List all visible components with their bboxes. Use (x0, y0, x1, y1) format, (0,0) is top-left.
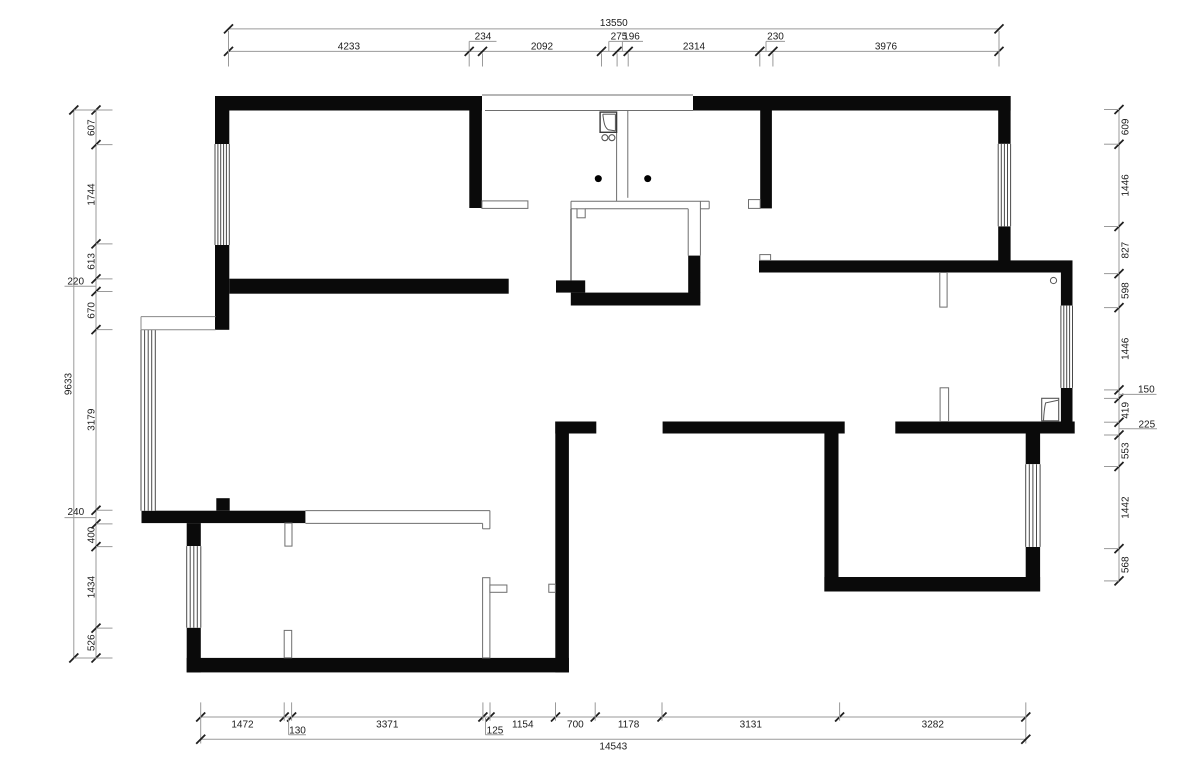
svg-text:1434: 1434 (86, 576, 97, 599)
svg-text:1178: 1178 (618, 720, 640, 731)
svg-text:609: 609 (1121, 118, 1132, 135)
svg-text:400: 400 (86, 526, 97, 543)
svg-text:1154: 1154 (512, 720, 534, 731)
svg-text:526: 526 (86, 634, 97, 651)
svg-text:196: 196 (623, 31, 640, 42)
svg-text:4233: 4233 (338, 41, 361, 52)
svg-text:3179: 3179 (86, 408, 97, 431)
svg-text:9633: 9633 (63, 372, 74, 395)
svg-text:598: 598 (1121, 282, 1132, 299)
svg-text:1744: 1744 (86, 183, 97, 206)
svg-text:2314: 2314 (683, 41, 706, 52)
svg-text:700: 700 (567, 720, 584, 731)
svg-text:230: 230 (767, 31, 784, 42)
svg-text:1472: 1472 (231, 720, 254, 731)
svg-text:1442: 1442 (1121, 496, 1132, 519)
svg-text:553: 553 (1121, 442, 1132, 459)
svg-text:419: 419 (1121, 402, 1132, 419)
svg-text:670: 670 (86, 302, 97, 319)
svg-text:3371: 3371 (376, 720, 399, 731)
svg-text:240: 240 (67, 507, 84, 518)
svg-text:2092: 2092 (531, 41, 554, 52)
svg-text:3976: 3976 (875, 41, 898, 52)
svg-text:1446: 1446 (1121, 337, 1132, 360)
svg-text:3282: 3282 (922, 720, 945, 731)
svg-text:827: 827 (1121, 241, 1132, 258)
svg-text:607: 607 (86, 119, 97, 136)
svg-text:568: 568 (1121, 556, 1132, 573)
svg-text:3131: 3131 (740, 720, 763, 731)
svg-text:1446: 1446 (1121, 174, 1132, 197)
svg-text:150: 150 (1138, 385, 1155, 396)
svg-text:14543: 14543 (599, 742, 627, 753)
svg-text:613: 613 (86, 253, 97, 270)
svg-text:13550: 13550 (600, 18, 628, 29)
svg-text:234: 234 (475, 31, 492, 42)
